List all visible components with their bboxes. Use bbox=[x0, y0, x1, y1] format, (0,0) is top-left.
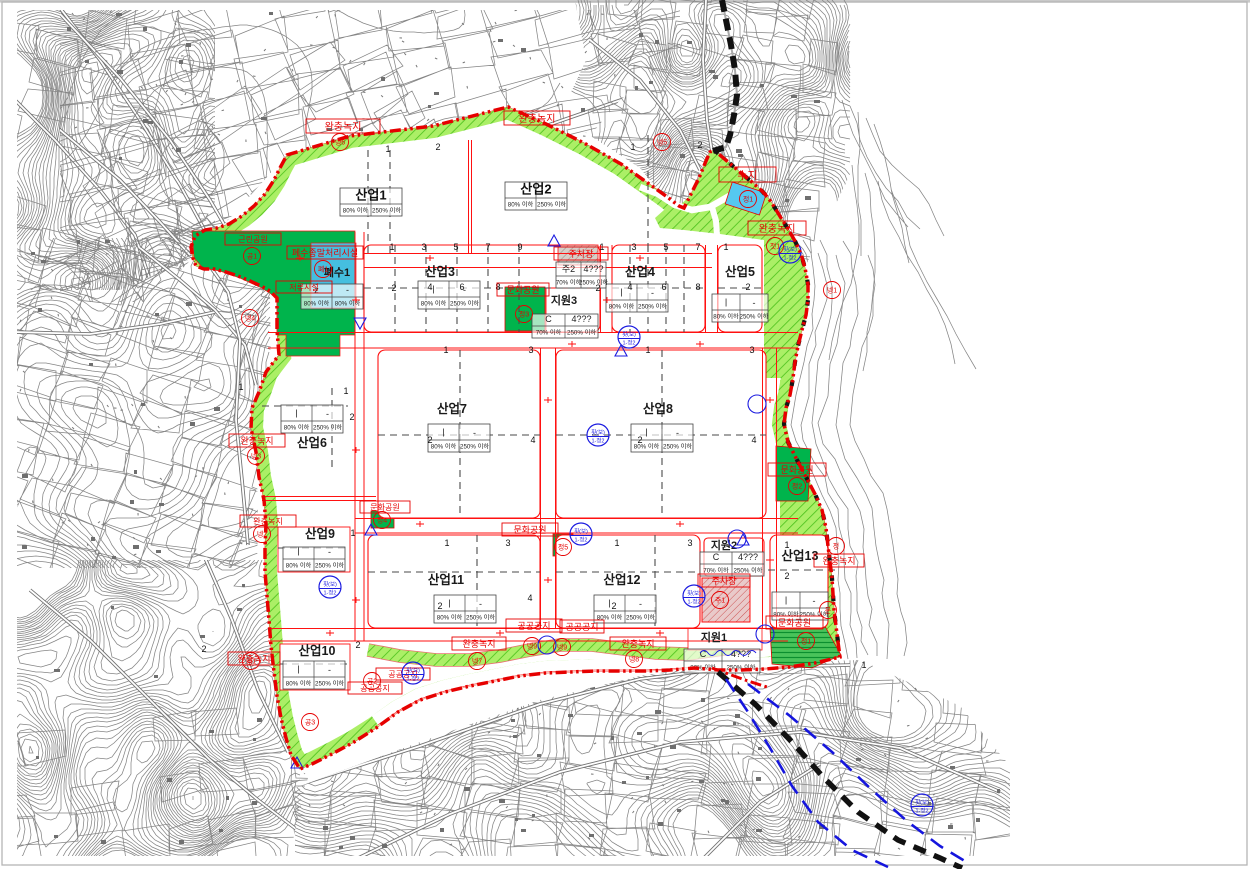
svg-text:2: 2 bbox=[349, 412, 354, 422]
svg-text:3: 3 bbox=[687, 538, 692, 548]
svg-text:횟(보): 횟(보) bbox=[687, 589, 701, 597]
svg-text:산업11: 산업11 bbox=[428, 572, 464, 587]
svg-text:250% 이하: 250% 이하 bbox=[567, 329, 596, 337]
svg-text:문화공원: 문화공원 bbox=[370, 503, 399, 512]
svg-text:완충녹지: 완충녹지 bbox=[462, 639, 495, 649]
svg-text:250% 이하: 250% 이하 bbox=[450, 300, 479, 308]
svg-text:250% 이하: 250% 이하 bbox=[638, 303, 667, 311]
svg-text:3: 3 bbox=[505, 538, 510, 548]
svg-text:ㅣ: ㅣ bbox=[294, 547, 302, 557]
svg-text:산업5: 산업5 bbox=[725, 264, 755, 279]
svg-text:1-정2: 1-정2 bbox=[406, 676, 419, 683]
svg-text:6: 6 bbox=[459, 282, 464, 292]
svg-text:문화공원: 문화공원 bbox=[506, 285, 539, 295]
svg-text:산업6: 산업6 bbox=[297, 435, 327, 450]
svg-text:250% 이하: 250% 이하 bbox=[313, 424, 342, 432]
svg-text:1-정2: 1-정2 bbox=[915, 808, 928, 815]
svg-text:80% 이하: 80% 이하 bbox=[335, 300, 361, 308]
svg-text:C: C bbox=[713, 552, 720, 562]
svg-text:-: - bbox=[326, 409, 329, 419]
svg-text:-: - bbox=[328, 547, 331, 557]
svg-text:-: - bbox=[813, 596, 816, 606]
svg-text:2: 2 bbox=[697, 140, 702, 150]
svg-text:폐1: 폐1 bbox=[318, 265, 328, 274]
svg-text:산업13: 산업13 bbox=[782, 548, 819, 563]
svg-text:공1: 공1 bbox=[247, 253, 257, 261]
svg-text:완충녹지: 완충녹지 bbox=[253, 517, 282, 526]
svg-text:2: 2 bbox=[435, 142, 440, 152]
svg-text:횟(보): 횟(보) bbox=[622, 330, 636, 338]
svg-text:250% 이하: 250% 이하 bbox=[740, 313, 769, 321]
svg-text:1: 1 bbox=[443, 345, 448, 355]
svg-text:주차장: 주차장 bbox=[712, 575, 737, 586]
svg-text:4: 4 bbox=[427, 282, 432, 292]
svg-text:80% 이하: 80% 이하 bbox=[437, 614, 463, 622]
svg-text:1-정2: 1-정2 bbox=[591, 438, 604, 445]
svg-text:8: 8 bbox=[695, 282, 700, 292]
svg-text:넹4: 넹4 bbox=[245, 314, 255, 323]
svg-text:정5: 정5 bbox=[558, 543, 568, 552]
svg-text:1: 1 bbox=[238, 382, 243, 392]
svg-text:80% 이하: 80% 이하 bbox=[286, 562, 312, 570]
svg-text:주차장: 주차장 bbox=[569, 248, 594, 259]
svg-text:2: 2 bbox=[201, 644, 206, 654]
svg-text:넹1: 넹1 bbox=[827, 286, 837, 295]
svg-text:7: 7 bbox=[695, 242, 700, 252]
svg-text:-: - bbox=[651, 288, 654, 298]
svg-text:1-정2: 1-정2 bbox=[574, 537, 587, 544]
svg-text:넹9: 넹9 bbox=[557, 643, 567, 652]
svg-text:70% 이하: 70% 이하 bbox=[536, 329, 562, 337]
svg-text:2: 2 bbox=[784, 571, 789, 581]
svg-text:250% 이하: 250% 이하 bbox=[315, 680, 344, 688]
svg-text:ㅣ: ㅣ bbox=[642, 428, 650, 438]
svg-text:250% 이하: 250% 이하 bbox=[372, 207, 401, 215]
svg-text:주1: 주1 bbox=[715, 597, 725, 605]
svg-text:횟(보): 횟(보) bbox=[783, 245, 797, 253]
svg-text:3: 3 bbox=[749, 345, 754, 355]
svg-text:산업9: 산업9 bbox=[305, 526, 335, 541]
svg-text:정3: 정3 bbox=[519, 310, 529, 319]
svg-text:1-정2: 1-정2 bbox=[323, 590, 336, 597]
svg-text:2: 2 bbox=[391, 283, 396, 293]
svg-text:-: - bbox=[676, 428, 679, 438]
svg-text:4???: 4??? bbox=[571, 314, 591, 324]
svg-text:1: 1 bbox=[389, 242, 394, 252]
svg-text:5: 5 bbox=[453, 242, 458, 252]
svg-text:4: 4 bbox=[530, 435, 535, 445]
svg-text:1: 1 bbox=[861, 660, 866, 670]
svg-text:1: 1 bbox=[723, 242, 728, 252]
svg-text:횟(보): 횟(보) bbox=[591, 428, 605, 436]
svg-text:횟(보): 횟(보) bbox=[406, 666, 420, 674]
svg-text:정: 정 bbox=[833, 542, 839, 551]
svg-text:저류시설: 저류시설 bbox=[289, 282, 318, 292]
svg-text:정1: 정1 bbox=[743, 195, 753, 204]
svg-text:80% 이하: 80% 이하 bbox=[508, 201, 534, 209]
svg-text:완충녹지: 완충녹지 bbox=[621, 639, 654, 649]
svg-text:80% 이하: 80% 이하 bbox=[343, 207, 369, 215]
svg-text:2: 2 bbox=[745, 282, 750, 292]
svg-text:산업12: 산업12 bbox=[604, 572, 641, 587]
svg-text:산업1: 산업1 bbox=[355, 188, 386, 203]
svg-text:문화공원: 문화공원 bbox=[780, 465, 813, 475]
svg-text:C: C bbox=[545, 314, 552, 324]
svg-text:3: 3 bbox=[421, 242, 426, 252]
svg-text:완충녹지: 완충녹지 bbox=[325, 121, 362, 133]
svg-text:ㅣ: ㅣ bbox=[617, 288, 625, 298]
svg-text:ㅣ: ㅣ bbox=[292, 409, 300, 419]
svg-text:7: 7 bbox=[485, 242, 490, 252]
svg-text:80% 이하: 80% 이하 bbox=[713, 313, 739, 321]
svg-text:250% 이하: 250% 이하 bbox=[460, 443, 489, 451]
svg-text:80% 이하: 80% 이하 bbox=[431, 443, 457, 451]
svg-text:1: 1 bbox=[444, 538, 449, 548]
svg-text:문: 문 bbox=[825, 607, 832, 615]
svg-text:넹7: 넹7 bbox=[472, 657, 482, 666]
svg-text:4: 4 bbox=[527, 593, 532, 603]
svg-text:70% 이하: 70% 이하 bbox=[703, 567, 729, 575]
svg-text:1: 1 bbox=[385, 144, 390, 154]
svg-text:정4: 정4 bbox=[377, 516, 387, 525]
svg-text:1: 1 bbox=[645, 345, 650, 355]
svg-text:1: 1 bbox=[630, 142, 635, 152]
svg-text:넹9: 넹9 bbox=[527, 642, 537, 651]
svg-text:-: - bbox=[328, 665, 331, 675]
svg-text:넹1: 넹1 bbox=[246, 657, 256, 666]
svg-text:80% 이하: 80% 이하 bbox=[286, 680, 312, 688]
svg-text:2: 2 bbox=[427, 435, 432, 445]
svg-text:80% 이하: 80% 이하 bbox=[304, 300, 330, 308]
svg-text:ㅣ: ㅣ bbox=[439, 428, 447, 438]
svg-text:공2: 공2 bbox=[367, 678, 377, 686]
svg-text:산업3: 산업3 bbox=[425, 264, 455, 279]
svg-text:4: 4 bbox=[627, 282, 632, 292]
svg-text:문화공원: 문화공원 bbox=[778, 618, 811, 628]
svg-text:ㅣ: ㅣ bbox=[722, 298, 730, 308]
svg-text:지원1: 지원1 bbox=[701, 630, 727, 644]
svg-text:1-정2: 1-정2 bbox=[687, 599, 700, 606]
svg-text:250% 이하: 250% 이하 bbox=[537, 201, 566, 209]
svg-text:정1: 정1 bbox=[801, 637, 811, 646]
svg-text:-: - bbox=[753, 298, 756, 308]
svg-text:횟(보): 횟(보) bbox=[574, 527, 588, 535]
svg-text:횟(보): 횟(보) bbox=[915, 798, 929, 806]
svg-text:공공공지: 공공공지 bbox=[565, 622, 598, 632]
svg-text:주2: 주2 bbox=[562, 264, 575, 274]
svg-text:-: - bbox=[473, 428, 476, 438]
svg-text:산업8: 산업8 bbox=[643, 401, 673, 416]
svg-text:2: 2 bbox=[595, 283, 600, 293]
svg-text:지원2: 지원2 bbox=[711, 538, 737, 552]
svg-text:80% 이하: 80% 이하 bbox=[421, 300, 447, 308]
svg-text:1-정2: 1-정2 bbox=[622, 340, 635, 347]
svg-text:3: 3 bbox=[631, 242, 636, 252]
svg-text:3: 3 bbox=[528, 345, 533, 355]
svg-text:1: 1 bbox=[614, 538, 619, 548]
svg-text:지원3: 지원3 bbox=[551, 293, 577, 307]
svg-text:250% 이하: 250% 이하 bbox=[626, 614, 655, 622]
svg-text:근린공원: 근린공원 bbox=[238, 234, 267, 244]
svg-text:횟(보): 횟(보) bbox=[323, 580, 337, 588]
svg-text:250% 이하: 250% 이하 bbox=[663, 443, 692, 451]
svg-text:2: 2 bbox=[637, 435, 642, 445]
svg-text:넹5: 넹5 bbox=[657, 138, 667, 147]
svg-text:산업4: 산업4 bbox=[625, 264, 655, 279]
svg-text:250% 이하: 250% 이하 bbox=[734, 567, 763, 575]
svg-text:ㅣ: ㅣ bbox=[782, 596, 790, 606]
svg-text:ㅣ: ㅣ bbox=[445, 599, 453, 609]
svg-text:9: 9 bbox=[517, 242, 522, 252]
svg-text:공3: 공3 bbox=[305, 719, 315, 727]
svg-text:문화공원: 문화공원 bbox=[513, 525, 546, 535]
svg-text:6: 6 bbox=[661, 282, 666, 292]
svg-text:8: 8 bbox=[495, 282, 500, 292]
svg-text:4: 4 bbox=[751, 435, 756, 445]
svg-text:80% 이하: 80% 이하 bbox=[609, 303, 635, 311]
svg-text:5: 5 bbox=[663, 242, 668, 252]
svg-text:4???: 4??? bbox=[583, 264, 603, 274]
svg-text:250% 이하: 250% 이하 bbox=[315, 562, 344, 570]
svg-text:70% 이하: 70% 이하 bbox=[556, 279, 582, 287]
svg-text:250% 이하: 250% 이하 bbox=[579, 279, 608, 287]
svg-text:1: 1 bbox=[350, 528, 355, 538]
svg-text:정2: 정2 bbox=[792, 482, 802, 491]
svg-text:공공공지: 공공공지 bbox=[517, 621, 550, 631]
svg-text:1: 1 bbox=[784, 540, 789, 550]
svg-text:넹8: 넹8 bbox=[629, 655, 639, 664]
svg-text:-: - bbox=[479, 599, 482, 609]
svg-text:1-정2: 1-정2 bbox=[783, 255, 796, 262]
svg-text:2: 2 bbox=[437, 601, 442, 611]
svg-text:-: - bbox=[639, 599, 642, 609]
svg-text:산업2: 산업2 bbox=[520, 182, 551, 197]
svg-text:2: 2 bbox=[611, 601, 616, 611]
svg-text:2: 2 bbox=[355, 640, 360, 650]
svg-text:4???: 4??? bbox=[738, 552, 758, 562]
svg-text:폐수종말처리시설: 폐수종말처리시설 bbox=[292, 247, 358, 258]
svg-text:산업10: 산업10 bbox=[299, 643, 336, 658]
svg-text:완충녹지: 완충녹지 bbox=[240, 436, 273, 446]
svg-text:1: 1 bbox=[343, 386, 348, 396]
svg-text:-: - bbox=[346, 285, 349, 295]
svg-text:80% 이하: 80% 이하 bbox=[284, 424, 310, 432]
svg-text:250% 이하: 250% 이하 bbox=[466, 614, 495, 622]
svg-text:ㅣ: ㅣ bbox=[294, 665, 302, 675]
svg-text:산업7: 산업7 bbox=[437, 401, 467, 416]
